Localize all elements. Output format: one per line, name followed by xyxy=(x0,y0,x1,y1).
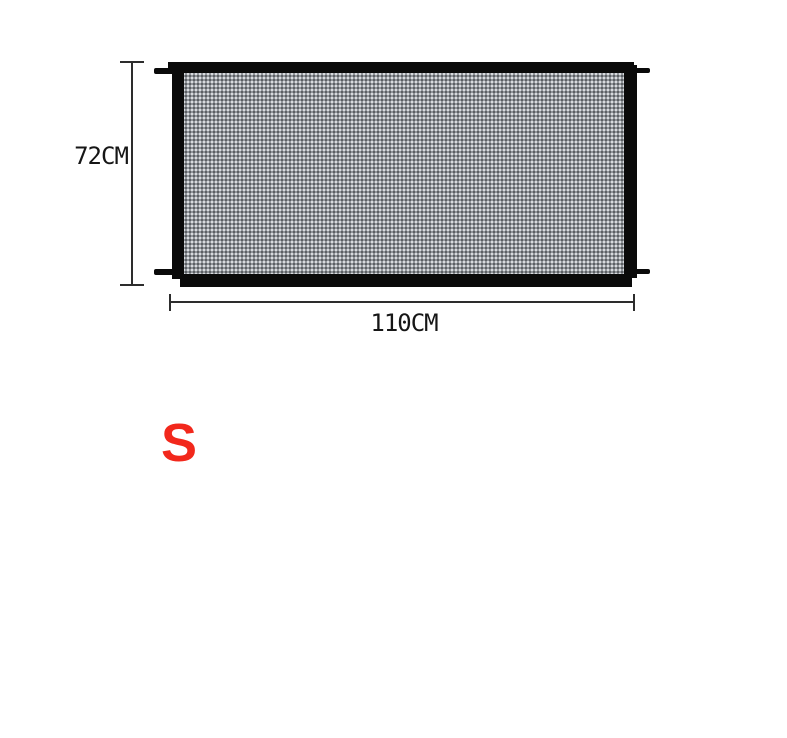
height-label: 72CM xyxy=(68,142,134,170)
gate-frame-top-bar xyxy=(168,62,634,73)
hook-tab-top-left-icon xyxy=(154,68,174,74)
size-letter: S xyxy=(161,416,197,470)
hook-tab-bottom-left-icon xyxy=(154,269,174,275)
height-dimension-cap-bottom xyxy=(120,284,144,286)
width-dimension-tick-left xyxy=(169,294,171,311)
width-dimension-tick-right xyxy=(633,294,635,311)
hook-tab-top-right-icon xyxy=(634,68,650,73)
width-dimension-line xyxy=(169,301,635,303)
product-dimension-diagram: 72CM 110CM S xyxy=(0,0,787,738)
mesh-panel xyxy=(182,72,626,275)
height-dimension-cap-top xyxy=(120,61,144,63)
hook-tab-bottom-right-icon xyxy=(634,269,650,274)
gate-frame-right-bar xyxy=(624,65,637,278)
gate-frame-left-bar xyxy=(172,65,184,279)
gate-frame-bottom-bar xyxy=(180,274,632,287)
width-label: 110CM xyxy=(338,309,470,337)
height-dimension-line xyxy=(131,61,133,286)
